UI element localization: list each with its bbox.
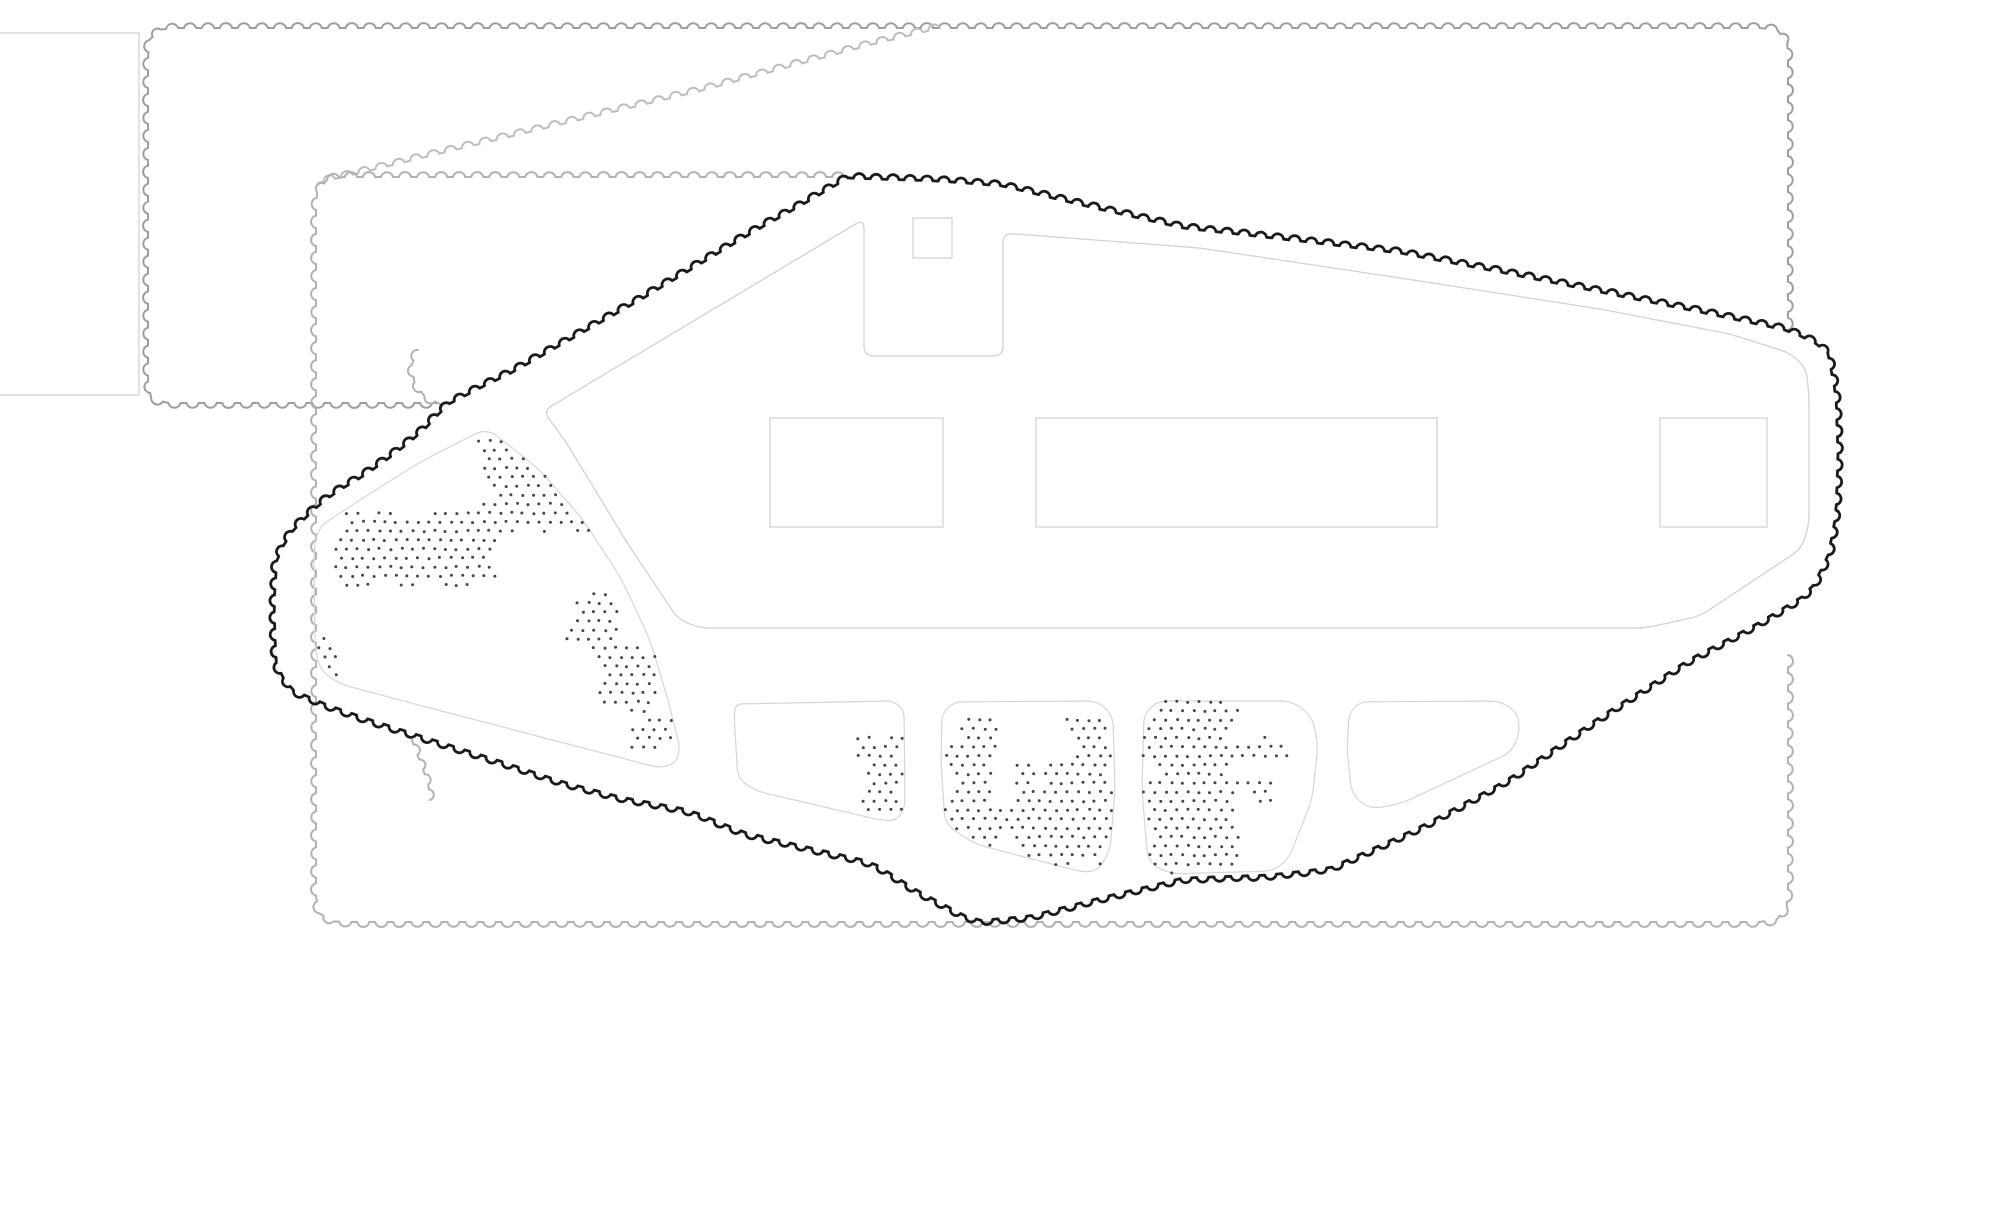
stipple-dot <box>615 682 618 685</box>
stipple-dot <box>505 485 508 488</box>
stipple-dot <box>356 547 359 550</box>
stipple-dot <box>1081 763 1084 766</box>
stipple-dot <box>493 449 496 452</box>
stipple-dot <box>999 826 1002 829</box>
stipple-dot <box>335 548 338 551</box>
stipple-dot <box>366 583 369 586</box>
stipple-dot <box>597 619 600 622</box>
stipple-dot <box>1263 736 1266 739</box>
stipple-dot <box>549 484 552 487</box>
stipple-dot <box>973 763 976 766</box>
stipple-dot <box>1164 755 1167 758</box>
stipple-dot <box>1050 835 1053 838</box>
stipple-dot <box>1153 718 1156 721</box>
stipple-dot <box>1060 817 1063 820</box>
stipple-dot <box>901 737 904 740</box>
stipple-dot <box>1154 827 1157 830</box>
stipple-dot <box>1203 854 1206 857</box>
stipple-dot <box>1049 854 1052 857</box>
stipple-dot <box>1066 845 1069 848</box>
stipple-dot <box>636 665 639 668</box>
stipple-dot <box>500 440 503 443</box>
stipple-dot <box>505 449 508 452</box>
courtyard-rect-2 <box>1036 418 1437 527</box>
stipple-dot <box>1171 781 1174 784</box>
stipple-dot <box>664 728 667 731</box>
stipple-dot <box>527 503 530 506</box>
stipple-dot <box>1066 862 1069 865</box>
stipple-dot <box>972 781 975 784</box>
stipple-dot <box>389 512 392 515</box>
stipple-dot <box>984 728 987 731</box>
stipple-dot <box>653 673 656 676</box>
stipple-dot <box>609 691 612 694</box>
stipple-dot <box>989 808 992 811</box>
stipple-dot <box>521 475 524 478</box>
stipple-dot <box>604 664 607 667</box>
stipple-dot <box>1071 835 1074 838</box>
stipple-dot <box>889 791 892 794</box>
stipple-dot <box>978 827 981 830</box>
stipple-dot <box>378 565 381 568</box>
stipple-dot <box>1149 781 1152 784</box>
stipple-dot <box>511 475 514 478</box>
stipple-dot <box>499 476 502 479</box>
stipple-dot <box>1027 836 1030 839</box>
stipple-dot <box>576 601 579 604</box>
stipple-dot <box>1088 773 1091 776</box>
stipple-dot <box>511 529 514 532</box>
stipple-dot <box>1076 808 1079 811</box>
stipple-dot <box>549 521 552 524</box>
stipple-dot <box>487 476 490 479</box>
stipple-dot <box>862 746 865 749</box>
stipple-dot <box>383 539 386 542</box>
stipple-dot <box>669 736 672 739</box>
stipple-dot <box>1043 790 1046 793</box>
stipple-dot <box>1236 745 1239 748</box>
stipple-dot <box>505 466 508 469</box>
stipple-dot <box>373 575 376 578</box>
stipple-dot <box>1180 835 1183 838</box>
stipple-dot <box>488 548 491 551</box>
stipple-dot <box>1208 845 1211 848</box>
stipple-dot <box>603 701 606 704</box>
stipple-dot <box>1181 817 1184 820</box>
stipple-dot <box>570 629 573 632</box>
stipple-dot <box>335 673 338 676</box>
stipple-dot <box>455 584 458 587</box>
stipple-dot <box>856 737 859 740</box>
stipple-dot <box>873 800 876 803</box>
stipple-dot <box>1226 800 1229 803</box>
stipple-dot <box>1147 818 1150 821</box>
stipple-dot <box>1264 790 1267 793</box>
stipple-dot <box>1186 701 1189 704</box>
stipple-dot <box>977 809 980 812</box>
stipple-dot <box>417 521 420 524</box>
stipple-dot <box>510 511 513 514</box>
stipple-dot <box>1153 791 1156 794</box>
stipple-dot <box>1153 755 1156 758</box>
stipple-dot <box>377 511 380 514</box>
stipple-dot <box>428 557 431 560</box>
stipple-dot <box>878 808 881 811</box>
stipple-dot <box>1160 709 1163 712</box>
stipple-dot <box>1165 791 1168 794</box>
stipple-dot <box>1213 709 1216 712</box>
stipple-dot <box>867 772 870 775</box>
stipple-dot <box>1081 854 1084 857</box>
stipple-dot <box>626 682 629 685</box>
stipple-dot <box>1187 790 1190 793</box>
stipple-dot <box>614 701 617 704</box>
stipple-dot <box>1193 836 1196 839</box>
stipple-dot <box>1209 827 1212 830</box>
stipple-dot <box>560 521 563 524</box>
stipple-dot <box>1103 764 1106 767</box>
stipple-dot <box>1253 791 1256 794</box>
stipple-dot <box>494 521 497 524</box>
stipple-dot <box>977 790 980 793</box>
stipple-dot <box>527 521 530 524</box>
stipple-dot <box>1198 700 1201 703</box>
stipple-dot <box>345 512 348 515</box>
stipple-dot <box>648 736 651 739</box>
adjacent-parcel-frame <box>0 33 139 395</box>
stipple-dot <box>890 755 893 758</box>
stipple-dot <box>400 566 403 569</box>
stipple-dot <box>961 745 964 748</box>
stipple-dot <box>1219 790 1222 793</box>
stipple-dot <box>428 538 431 541</box>
stipple-dot <box>444 548 447 551</box>
stipple-dot <box>406 521 409 524</box>
stipple-dot <box>972 799 975 802</box>
stipple-dot <box>445 583 448 586</box>
stipple-dot <box>1237 836 1240 839</box>
stipple-dot <box>1104 746 1107 749</box>
stipple-dot <box>1215 746 1218 749</box>
stipple-dot <box>454 548 457 551</box>
stipple-dot <box>961 782 964 785</box>
stipple-dot <box>460 521 463 524</box>
stipple-dot <box>972 746 975 749</box>
stipple-dot <box>1181 782 1184 785</box>
stipple-dot <box>658 719 661 722</box>
stipple-dot <box>522 457 525 460</box>
stipple-dot <box>1165 826 1168 829</box>
stipple-dot <box>526 467 529 470</box>
stipple-dot <box>471 556 474 559</box>
stipple-dot <box>1219 719 1222 722</box>
stipple-dot <box>967 718 970 721</box>
stipple-dot <box>537 502 540 505</box>
stipple-dot <box>1236 781 1239 784</box>
stipple-dot <box>450 556 453 559</box>
stipple-dot <box>372 538 375 541</box>
stipple-dot <box>1197 862 1200 865</box>
stipple-dot <box>356 584 359 587</box>
stipple-dot <box>977 737 980 740</box>
stipple-dot <box>1105 817 1108 820</box>
stipple-dot <box>1099 773 1102 776</box>
stipple-dot <box>532 494 535 497</box>
stipple-dot <box>592 646 595 649</box>
stipple-dot <box>450 521 453 524</box>
stipple-dot <box>543 530 546 533</box>
stipple-dot <box>967 791 970 794</box>
stipple-dot <box>1270 745 1273 748</box>
stipple-dot <box>637 700 640 703</box>
stipple-dot <box>641 728 644 731</box>
stipple-dot <box>1027 764 1030 767</box>
stipple-dot <box>488 566 491 569</box>
stipple-dot <box>433 566 436 569</box>
stipple-dot <box>1016 764 1019 767</box>
stipple-dot <box>1230 863 1233 866</box>
stipple-dot <box>961 817 964 820</box>
stipple-dot <box>636 737 639 740</box>
stipple-dot <box>1225 853 1228 856</box>
stipple-dot <box>1148 800 1151 803</box>
stipple-dot <box>339 538 342 541</box>
stipple-dot <box>1208 791 1211 794</box>
stipple-dot <box>1044 772 1047 775</box>
stipple-dot <box>1093 835 1096 838</box>
stipple-dot <box>994 817 997 820</box>
stipple-dot <box>1203 745 1206 748</box>
stipple-dot <box>1154 736 1157 739</box>
stipple-dot <box>1032 790 1035 793</box>
stipple-dot <box>989 718 992 721</box>
stipple-dot <box>951 800 954 803</box>
stipple-dot <box>1186 755 1189 758</box>
stipple-dot <box>1071 800 1074 803</box>
stipple-dot <box>1093 745 1096 748</box>
stipple-dot <box>1192 745 1195 748</box>
stipple-dot <box>982 764 985 767</box>
stipple-dot <box>1022 844 1025 847</box>
stipple-dot <box>588 601 591 604</box>
stipple-dot <box>427 575 430 578</box>
stipple-dot <box>1153 845 1156 848</box>
stipple-dot <box>1213 728 1216 731</box>
stipple-dot <box>1187 719 1190 722</box>
stipple-dot <box>1197 737 1200 740</box>
stipple-dot <box>1104 799 1107 802</box>
stipple-dot <box>1193 854 1196 857</box>
stipple-dot <box>1098 719 1101 722</box>
stipple-dot <box>1192 818 1195 821</box>
stipple-dot <box>631 728 634 731</box>
stipple-dot <box>1142 754 1145 757</box>
stipple-dot <box>322 637 325 640</box>
stipple-dot <box>527 484 530 487</box>
stipple-dot <box>1214 853 1217 856</box>
stipple-dot <box>532 475 535 478</box>
stipple-dot <box>427 521 430 524</box>
stipple-dot <box>1076 755 1079 758</box>
stipple-dot <box>950 818 953 821</box>
stipple-dot <box>477 547 480 550</box>
stipple-dot <box>989 772 992 775</box>
stipple-dot <box>1044 827 1047 830</box>
stipple-dot <box>862 800 865 803</box>
stipple-dot <box>621 691 624 694</box>
grove-south-1 <box>734 701 905 820</box>
stipple-dot <box>339 575 342 578</box>
stipple-dot <box>1109 754 1112 757</box>
stipple-dot <box>1219 826 1222 829</box>
stipple-dot <box>1055 809 1058 812</box>
stipple-dot <box>1087 736 1090 739</box>
stipple-dot <box>461 574 464 577</box>
stipple-dot <box>994 836 997 839</box>
stipple-dot <box>1110 791 1113 794</box>
stipple-dot <box>1093 727 1096 730</box>
stipple-dot <box>1175 808 1178 811</box>
stipple-dot <box>1187 863 1190 866</box>
stipple-dot <box>625 701 628 704</box>
stipple-dot <box>609 637 612 640</box>
stipple-dot <box>1109 827 1112 830</box>
stipple-dot <box>466 548 469 551</box>
stipple-dot <box>1192 728 1195 731</box>
stipple-dot <box>510 457 513 460</box>
stipple-dot <box>604 647 607 650</box>
stipple-dot <box>543 494 546 497</box>
stipple-dot <box>505 502 508 505</box>
stipple-dot <box>471 521 474 524</box>
stipple-dot <box>1208 808 1211 811</box>
stipple-dot <box>1187 736 1190 739</box>
stipple-dot <box>1247 781 1250 784</box>
stipple-dot <box>1154 863 1157 866</box>
stipple-dot <box>1247 746 1250 749</box>
stipple-dot <box>477 529 480 532</box>
stipple-dot <box>1032 808 1035 811</box>
stipple-dot <box>1158 763 1161 766</box>
stipple-dot <box>467 529 470 532</box>
stipple-dot <box>515 485 518 488</box>
stipple-dot <box>1022 791 1025 794</box>
stipple-dot <box>1082 781 1085 784</box>
stipple-dot <box>439 575 442 578</box>
stipple-dot <box>351 557 354 560</box>
stipple-dot <box>1082 836 1085 839</box>
stipple-dot <box>466 566 469 569</box>
stipple-dot <box>988 790 991 793</box>
stipple-dot <box>1044 844 1047 847</box>
stipple-dot <box>1060 853 1063 856</box>
stipple-dot <box>1017 818 1020 821</box>
stipple-dot <box>450 539 453 542</box>
stipple-dot <box>642 673 645 676</box>
stipple-dot <box>1066 772 1069 775</box>
stipple-dot <box>345 548 348 551</box>
stipple-dot <box>900 808 903 811</box>
stipple-dot <box>1175 736 1178 739</box>
stipple-dot <box>345 584 348 587</box>
stipple-dot <box>603 610 606 613</box>
stipple-dot <box>1021 772 1024 775</box>
stipple-dot <box>1049 764 1052 767</box>
stipple-dot <box>1170 817 1173 820</box>
stipple-dot <box>401 547 404 550</box>
stipple-dot <box>857 754 860 757</box>
stipple-dot <box>614 646 617 649</box>
stipple-dot <box>505 520 508 523</box>
stipple-dot <box>406 538 409 541</box>
stipple-dot <box>1087 845 1090 848</box>
stipple-dot <box>1028 799 1031 802</box>
stipple-dot <box>1148 746 1151 749</box>
stipple-dot <box>884 745 887 748</box>
stipple-dot <box>1252 754 1255 757</box>
grove-west-triangle-stipple <box>317 439 673 749</box>
stipple-dot <box>873 763 876 766</box>
stipple-dot <box>477 511 480 514</box>
stipple-dot <box>1220 809 1223 812</box>
stipple-dot <box>1198 827 1201 830</box>
stipple-dot <box>1225 763 1228 766</box>
stipple-dot <box>455 512 458 515</box>
stipple-dot <box>1197 808 1200 811</box>
stipple-dot <box>399 530 402 533</box>
stipple-dot <box>879 755 882 758</box>
stipple-dot <box>1105 835 1108 838</box>
stipple-dot <box>483 449 486 452</box>
stipple-dot <box>576 529 579 532</box>
stipple-dot <box>1103 781 1106 784</box>
stipple-dot <box>383 556 386 559</box>
stipple-dot <box>1033 844 1036 847</box>
stipple-dot <box>659 737 662 740</box>
stipple-dot <box>608 673 611 676</box>
stipple-dot <box>395 574 398 577</box>
stipple-dot <box>604 629 607 632</box>
stipple-dot <box>340 557 343 560</box>
stipple-dot <box>1098 736 1101 739</box>
stipple-dot <box>544 475 547 478</box>
stipple-dot <box>648 682 651 685</box>
stipple-dot <box>1027 817 1030 820</box>
stipple-dot <box>482 556 485 559</box>
stipple-dot <box>1198 755 1201 758</box>
stipple-dot <box>1197 719 1200 722</box>
stipple-dot <box>1219 701 1222 704</box>
stipple-dot <box>1235 854 1238 857</box>
stipple-dot <box>1160 745 1163 748</box>
stipple-dot <box>1088 808 1091 811</box>
stipple-dot <box>588 619 591 622</box>
stipple-dot <box>1087 754 1090 757</box>
stipple-dot <box>560 503 563 506</box>
stipple-dot <box>1214 835 1217 838</box>
stipple-dot <box>1044 809 1047 812</box>
site-plan-drawing <box>0 0 2000 1229</box>
stipple-dot <box>1088 719 1091 722</box>
stipple-dot <box>1231 845 1234 848</box>
stipple-dot <box>1231 826 1234 829</box>
stipple-dot <box>351 521 354 524</box>
stipple-dot <box>1208 773 1211 776</box>
stipple-dot <box>1066 809 1069 812</box>
stipple-dot <box>972 817 975 820</box>
stipple-dot <box>1147 727 1150 730</box>
stipple-dot <box>493 539 496 542</box>
